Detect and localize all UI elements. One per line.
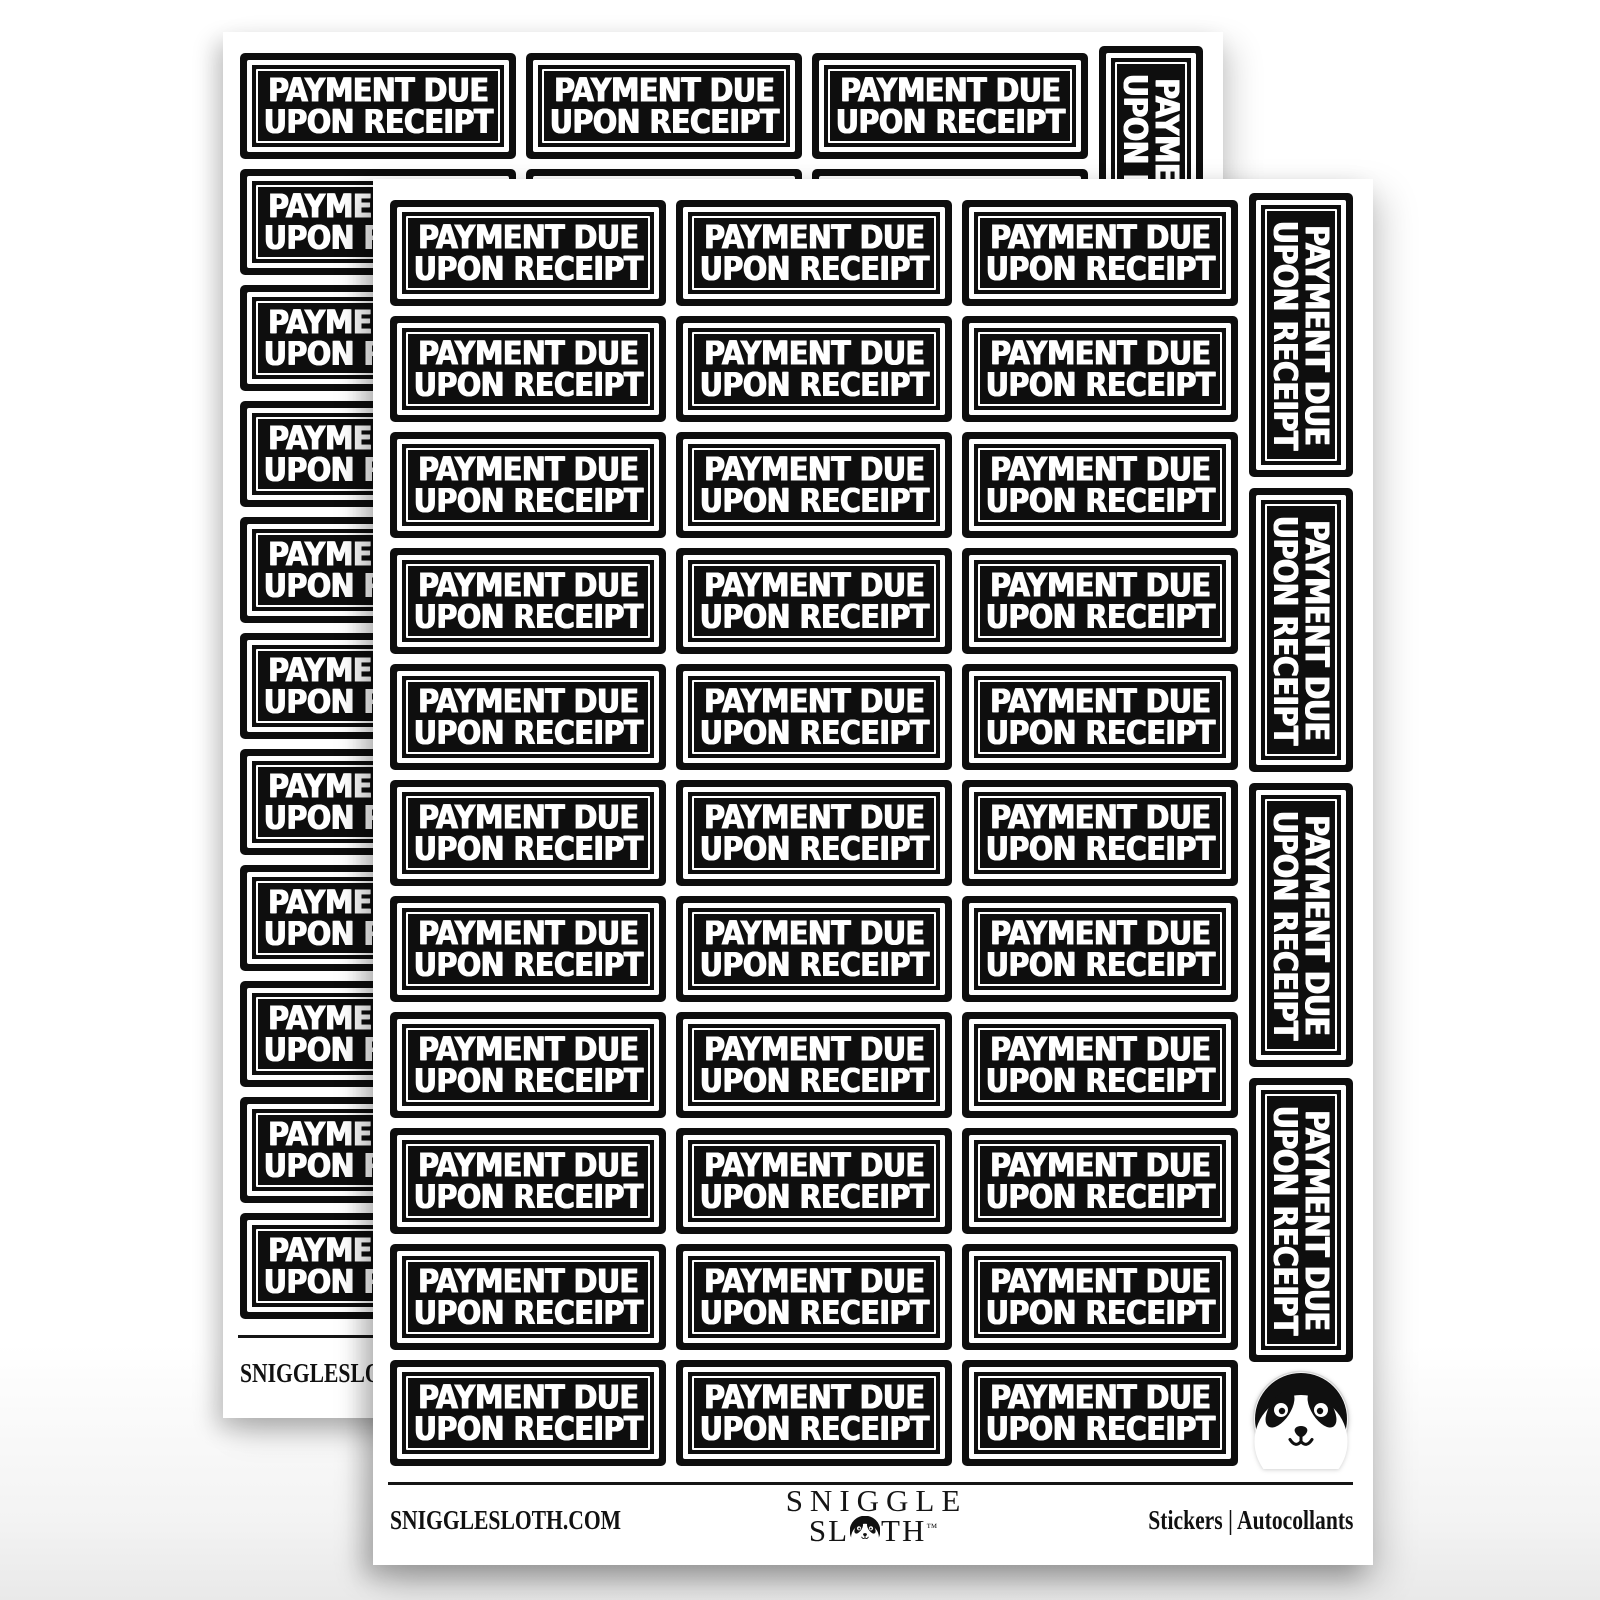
sticker-text-line2: UPON RECEIPT [1266, 515, 1305, 744]
sticker-sheet-front: PAYMENT DUEUPON RECEIPT PAYMENT DUEUPON … [373, 179, 1373, 1565]
sticker-inner-frame: PAYMENT DUEUPON RECEIPT [256, 69, 500, 143]
sticker-text: PAYMENT DUEUPON RECEIPT [413, 685, 642, 749]
payment-due-sticker: PAYMENT DUEUPON RECEIPT [676, 316, 952, 422]
sticker-text-line2: UPON RECEIPT [985, 713, 1214, 752]
sloth-face-icon [1251, 1369, 1351, 1469]
sticker-text: PAYMENT DUEUPON RECEIPT [835, 74, 1064, 138]
sticker-inner-frame: PAYMENT DUEUPON RECEIPT [978, 1144, 1222, 1218]
payment-due-sticker: PAYMENT DUEUPON RECEIPT [390, 548, 666, 654]
sticker-inner-frame: PAYMENT DUEUPON RECEIPT [978, 332, 1222, 406]
sticker-inner-frame: PAYMENT DUEUPON RECEIPT [692, 1260, 936, 1334]
sticker-text: PAYMENT DUEUPON RECEIPT [413, 221, 642, 285]
payment-due-sticker: PAYMENT DUEUPON RECEIPT [676, 1360, 952, 1466]
payment-due-sticker: PAYMENT DUEUPON RECEIPT [962, 432, 1238, 538]
sticker-text-line2: UPON RECEIPT [1266, 220, 1305, 449]
payment-due-sticker: PAYMENT DUEUPON RECEIPT [390, 1128, 666, 1234]
sticker-text: PAYMENT DUEUPON RECEIPT [699, 1033, 928, 1097]
sticker-text-line2: UPON RECEIPT [413, 365, 642, 404]
sticker-text-line2: UPON RECEIPT [699, 365, 928, 404]
sticker-sheet-surface: PAYMENT DUEUPON RECEIPT PAYMENT DUEUPON … [373, 179, 1373, 1565]
payment-due-sticker: PAYMENT DUEUPON RECEIPT [390, 896, 666, 1002]
sticker-inner-frame: PAYMENT DUEUPON RECEIPT [542, 69, 786, 143]
sticker-inner-frame: PAYMENT DUEUPON RECEIPT [406, 216, 650, 290]
sticker-inner-frame: PAYMENT DUEUPON RECEIPT [406, 1144, 650, 1218]
sticker-text: PAYMENT DUEUPON RECEIPT [549, 74, 778, 138]
sticker-inner-frame: PAYMENT DUEUPON RECEIPT [978, 564, 1222, 638]
sticker-text-line2: UPON RECEIPT [413, 1409, 642, 1448]
payment-due-sticker: PAYMENT DUEUPON RECEIPT [676, 1128, 952, 1234]
payment-due-sticker: PAYMENT DUEUPON RECEIPT [390, 780, 666, 886]
sticker-text-line2: UPON RECEIPT [985, 1293, 1214, 1332]
payment-due-sticker: PAYMENT DUEUPON RECEIPT [240, 53, 516, 159]
sticker-text: PAYMENT DUEUPON RECEIPT [1269, 1105, 1333, 1334]
payment-due-sticker: PAYMENT DUEUPON RECEIPT [390, 1244, 666, 1350]
sticker-inner-frame: PAYMENT DUEUPON RECEIPT [692, 448, 936, 522]
payment-due-sticker: PAYMENT DUEUPON RECEIPT [812, 53, 1088, 159]
sticker-text-line2: UPON RECEIPT [413, 1061, 642, 1100]
sticker-text-line2: UPON RECEIPT [413, 829, 642, 868]
sticker-text: PAYMENT DUEUPON RECEIPT [699, 453, 928, 517]
sticker-inner-frame: PAYMENT DUEUPON RECEIPT [692, 332, 936, 406]
sticker-inner-frame: PAYMENT DUEUPON RECEIPT [406, 912, 650, 986]
payment-due-sticker-rotated: PAYMENT DUEUPON RECEIPT [1249, 1078, 1353, 1362]
sticker-inner-frame: PAYMENT DUEUPON RECEIPT [692, 1028, 936, 1102]
sticker-text-line2: UPON RECEIPT [413, 713, 642, 752]
sticker-text-line2: UPON RECEIPT [985, 1409, 1214, 1448]
sticker-inner-frame: PAYMENT DUEUPON RECEIPT [1265, 1094, 1337, 1346]
sticker-text-line2: UPON RECEIPT [413, 1293, 642, 1332]
sticker-text-line2: UPON RECEIPT [699, 945, 928, 984]
sticker-text-line2: UPON RECEIPT [1266, 1105, 1305, 1334]
product-photo-stage: PAYMENT DUEUPON RECEIPT PAYMENT DUEUPON … [0, 0, 1600, 1600]
payment-due-sticker: PAYMENT DUEUPON RECEIPT [676, 1244, 952, 1350]
sticker-text-line2: UPON RECEIPT [699, 713, 928, 752]
payment-due-sticker-vertical: PAYMENT DUEUPON RECEIPT [1249, 193, 1353, 477]
sticker-text: PAYMENT DUEUPON RECEIPT [413, 801, 642, 865]
sticker-inner-frame: PAYMENT DUEUPON RECEIPT [406, 332, 650, 406]
sticker-text: PAYMENT DUEUPON RECEIPT [985, 337, 1214, 401]
sticker-inner-frame: PAYMENT DUEUPON RECEIPT [978, 1028, 1222, 1102]
sticker-inner-frame: PAYMENT DUEUPON RECEIPT [406, 796, 650, 870]
sticker-text-line2: UPON RECEIPT [413, 597, 642, 636]
sticker-text: PAYMENT DUEUPON RECEIPT [985, 569, 1214, 633]
sticker-text-line2: UPON RECEIPT [413, 1177, 642, 1216]
trademark-symbol: ™ [926, 1522, 937, 1534]
sticker-text-line2: UPON RECEIPT [413, 249, 642, 288]
payment-due-sticker: PAYMENT DUEUPON RECEIPT [676, 780, 952, 886]
sticker-inner-frame: PAYMENT DUEUPON RECEIPT [692, 564, 936, 638]
sticker-text: PAYMENT DUEUPON RECEIPT [699, 1265, 928, 1329]
sticker-inner-frame: PAYMENT DUEUPON RECEIPT [406, 448, 650, 522]
sticker-inner-frame: PAYMENT DUEUPON RECEIPT [978, 912, 1222, 986]
brand-sl: SL [809, 1513, 849, 1548]
sticker-text: PAYMENT DUEUPON RECEIPT [985, 685, 1214, 749]
sticker-text-line2: UPON RECEIPT [413, 945, 642, 984]
payment-due-sticker: PAYMENT DUEUPON RECEIPT [390, 1360, 666, 1466]
sticker-text-line2: UPON RECEIPT [413, 481, 642, 520]
sticker-text: PAYMENT DUEUPON RECEIPT [699, 569, 928, 633]
sticker-text-line2: UPON RECEIPT [985, 597, 1214, 636]
sticker-inner-frame: PAYMENT DUEUPON RECEIPT [828, 69, 1072, 143]
sticker-text: PAYMENT DUEUPON RECEIPT [413, 453, 642, 517]
sticker-text: PAYMENT DUEUPON RECEIPT [985, 1381, 1214, 1445]
sticker-text: PAYMENT DUEUPON RECEIPT [263, 74, 492, 138]
sticker-inner-frame: PAYMENT DUEUPON RECEIPT [406, 1260, 650, 1334]
sticker-text: PAYMENT DUEUPON RECEIPT [699, 337, 928, 401]
sticker-text: PAYMENT DUEUPON RECEIPT [413, 917, 642, 981]
sticker-text: PAYMENT DUEUPON RECEIPT [985, 1033, 1214, 1097]
payment-due-sticker: PAYMENT DUEUPON RECEIPT [676, 200, 952, 306]
payment-due-sticker: PAYMENT DUEUPON RECEIPT [962, 200, 1238, 306]
payment-due-sticker: PAYMENT DUEUPON RECEIPT [962, 1128, 1238, 1234]
payment-due-sticker: PAYMENT DUEUPON RECEIPT [676, 896, 952, 1002]
sticker-text-line2: UPON RECEIPT [699, 481, 928, 520]
sticker-text: PAYMENT DUEUPON RECEIPT [985, 801, 1214, 865]
payment-due-sticker-vertical: PAYMENT DUEUPON RECEIPT [1249, 488, 1353, 772]
sticker-inner-frame: PAYMENT DUEUPON RECEIPT [1265, 799, 1337, 1051]
sticker-text-line2: UPON RECEIPT [699, 597, 928, 636]
sticker-inner-frame: PAYMENT DUEUPON RECEIPT [406, 680, 650, 754]
sloth-face-icon [850, 1516, 880, 1546]
payment-due-sticker: PAYMENT DUEUPON RECEIPT [390, 200, 666, 306]
brand-th: TH [881, 1513, 926, 1548]
sloth-face-letter-o-icon [850, 1516, 880, 1546]
sticker-text-line2: UPON RECEIPT [835, 102, 1064, 141]
sticker-inner-frame: PAYMENT DUEUPON RECEIPT [692, 912, 936, 986]
sticker-inner-frame: PAYMENT DUEUPON RECEIPT [978, 216, 1222, 290]
payment-due-sticker: PAYMENT DUEUPON RECEIPT [676, 548, 952, 654]
sticker-text-line2: UPON RECEIPT [985, 945, 1214, 984]
sticker-text-line2: UPON RECEIPT [985, 1177, 1214, 1216]
sticker-text-line2: UPON RECEIPT [985, 481, 1214, 520]
sticker-text-line2: UPON RECEIPT [699, 829, 928, 868]
sticker-text: PAYMENT DUEUPON RECEIPT [1269, 220, 1333, 449]
sticker-text-line2: UPON RECEIPT [699, 1409, 928, 1448]
sticker-inner-frame: PAYMENT DUEUPON RECEIPT [692, 216, 936, 290]
payment-due-sticker: PAYMENT DUEUPON RECEIPT [390, 664, 666, 770]
payment-due-sticker: PAYMENT DUEUPON RECEIPT [676, 664, 952, 770]
sticker-text: PAYMENT DUEUPON RECEIPT [413, 569, 642, 633]
sticker-text: PAYMENT DUEUPON RECEIPT [413, 337, 642, 401]
sticker-text: PAYMENT DUEUPON RECEIPT [413, 1033, 642, 1097]
sticker-inner-frame: PAYMENT DUEUPON RECEIPT [978, 796, 1222, 870]
payment-due-sticker: PAYMENT DUEUPON RECEIPT [962, 548, 1238, 654]
sticker-text: PAYMENT DUEUPON RECEIPT [985, 221, 1214, 285]
sticker-inner-frame: PAYMENT DUEUPON RECEIPT [692, 796, 936, 870]
sticker-text: PAYMENT DUEUPON RECEIPT [413, 1265, 642, 1329]
sticker-text: PAYMENT DUEUPON RECEIPT [1269, 515, 1333, 744]
sticker-text: PAYMENT DUEUPON RECEIPT [985, 917, 1214, 981]
payment-due-sticker: PAYMENT DUEUPON RECEIPT [962, 1360, 1238, 1466]
sticker-inner-frame: PAYMENT DUEUPON RECEIPT [978, 448, 1222, 522]
sticker-text-line2: UPON RECEIPT [985, 1061, 1214, 1100]
payment-due-sticker: PAYMENT DUEUPON RECEIPT [390, 316, 666, 422]
payment-due-sticker-vertical: PAYMENT DUEUPON RECEIPT [1249, 1078, 1353, 1362]
sticker-text-line2: UPON RECEIPT [699, 249, 928, 288]
sticker-inner-frame: PAYMENT DUEUPON RECEIPT [1265, 504, 1337, 756]
payment-due-sticker-vertical: PAYMENT DUEUPON RECEIPT [1249, 783, 1353, 1067]
sticker-text: PAYMENT DUEUPON RECEIPT [985, 453, 1214, 517]
footer-language-label: Stickers | Autocollants [1148, 1505, 1353, 1536]
sticker-inner-frame: PAYMENT DUEUPON RECEIPT [978, 1260, 1222, 1334]
sticker-text: PAYMENT DUEUPON RECEIPT [699, 221, 928, 285]
payment-due-sticker: PAYMENT DUEUPON RECEIPT [962, 780, 1238, 886]
payment-due-sticker: PAYMENT DUEUPON RECEIPT [676, 1012, 952, 1118]
payment-due-sticker: PAYMENT DUEUPON RECEIPT [962, 316, 1238, 422]
sticker-inner-frame: PAYMENT DUEUPON RECEIPT [406, 564, 650, 638]
sticker-text-line2: UPON RECEIPT [985, 365, 1214, 404]
sticker-text-line2: UPON RECEIPT [263, 102, 492, 141]
sticker-text-line2: UPON RECEIPT [1266, 810, 1305, 1039]
payment-due-sticker: PAYMENT DUEUPON RECEIPT [962, 896, 1238, 1002]
sticker-inner-frame: PAYMENT DUEUPON RECEIPT [692, 1144, 936, 1218]
payment-due-sticker: PAYMENT DUEUPON RECEIPT [962, 1244, 1238, 1350]
sticker-text: PAYMENT DUEUPON RECEIPT [413, 1381, 642, 1445]
payment-due-sticker-rotated: PAYMENT DUEUPON RECEIPT [1249, 193, 1353, 477]
sticker-text-line2: UPON RECEIPT [985, 249, 1214, 288]
payment-due-sticker: PAYMENT DUEUPON RECEIPT [390, 432, 666, 538]
sticker-inner-frame: PAYMENT DUEUPON RECEIPT [406, 1028, 650, 1102]
sticker-inner-frame: PAYMENT DUEUPON RECEIPT [406, 1376, 650, 1450]
sticker-text: PAYMENT DUEUPON RECEIPT [699, 917, 928, 981]
sticker-inner-frame: PAYMENT DUEUPON RECEIPT [692, 1376, 936, 1450]
sticker-inner-frame: PAYMENT DUEUPON RECEIPT [978, 680, 1222, 754]
payment-due-sticker: PAYMENT DUEUPON RECEIPT [390, 1012, 666, 1118]
sticker-text: PAYMENT DUEUPON RECEIPT [413, 1149, 642, 1213]
sticker-text: PAYMENT DUEUPON RECEIPT [985, 1265, 1214, 1329]
sticker-text-line2: UPON RECEIPT [549, 102, 778, 141]
sticker-text-line2: UPON RECEIPT [985, 829, 1214, 868]
sticker-text-line2: UPON RECEIPT [699, 1293, 928, 1332]
payment-due-sticker: PAYMENT DUEUPON RECEIPT [962, 1012, 1238, 1118]
sticker-text: PAYMENT DUEUPON RECEIPT [699, 1381, 928, 1445]
sticker-text: PAYMENT DUEUPON RECEIPT [985, 1149, 1214, 1213]
payment-due-sticker: PAYMENT DUEUPON RECEIPT [962, 664, 1238, 770]
sticker-inner-frame: PAYMENT DUEUPON RECEIPT [1265, 209, 1337, 461]
sticker-text: PAYMENT DUEUPON RECEIPT [699, 801, 928, 865]
sticker-text: PAYMENT DUEUPON RECEIPT [699, 685, 928, 749]
sticker-inner-frame: PAYMENT DUEUPON RECEIPT [978, 1376, 1222, 1450]
sticker-text-line2: UPON RECEIPT [699, 1177, 928, 1216]
sticker-text-line2: UPON RECEIPT [699, 1061, 928, 1100]
sticker-text: PAYMENT DUEUPON RECEIPT [1269, 810, 1333, 1039]
sticker-inner-frame: PAYMENT DUEUPON RECEIPT [692, 680, 936, 754]
payment-due-sticker: PAYMENT DUEUPON RECEIPT [526, 53, 802, 159]
sticker-text: PAYMENT DUEUPON RECEIPT [699, 1149, 928, 1213]
sloth-logo-sticker [1251, 1369, 1351, 1469]
payment-due-sticker-rotated: PAYMENT DUEUPON RECEIPT [1249, 783, 1353, 1067]
payment-due-sticker: PAYMENT DUEUPON RECEIPT [676, 432, 952, 538]
payment-due-sticker-rotated: PAYMENT DUEUPON RECEIPT [1249, 488, 1353, 772]
